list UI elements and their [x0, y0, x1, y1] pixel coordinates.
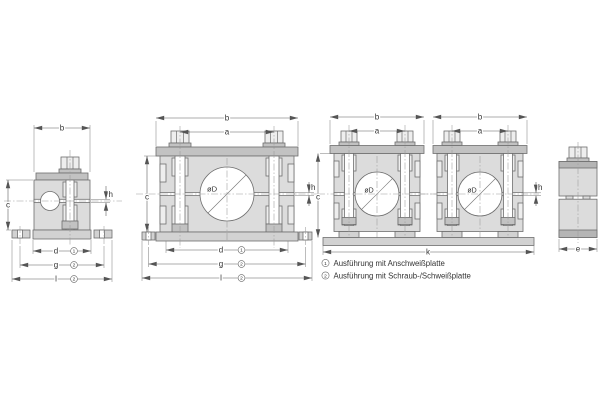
dim-label-d: d [54, 247, 58, 256]
view-small-clamp: b c h d 1 g 2 l 2 [4, 124, 122, 284]
clamp-geometry [12, 157, 112, 239]
base-plate [33, 230, 91, 239]
dimensions: e [559, 239, 597, 254]
dim-label-b: b [60, 124, 65, 133]
dim-label-l: l [220, 274, 222, 283]
ref-2: 2 [73, 263, 76, 269]
view-side: e [559, 142, 597, 254]
dim-label-h: h [538, 183, 542, 192]
dim-label-a: a [225, 128, 230, 137]
legend-ref-1: 1 [324, 261, 327, 267]
dim-label-a: a [375, 127, 380, 136]
mounting-rail [323, 238, 534, 246]
dim-label-b: b [225, 114, 230, 123]
ref-2: 2 [240, 262, 243, 268]
top-cover-plate [36, 173, 88, 180]
dim-label-c: c [145, 193, 149, 202]
clamp-right [421, 125, 539, 241]
legend-item-weld-plate: 1 Ausführung mit Anschweißplatte [322, 259, 445, 268]
view-double-clamp-rail: b a b a c h k [316, 113, 542, 257]
ref-2: 2 [240, 276, 243, 282]
dim-label-h: h [109, 190, 113, 199]
dim-label-b: b [375, 113, 380, 122]
technical-drawing-page: øD [0, 0, 600, 400]
legend: 1 Ausführung mit Anschweißplatte 2 Ausfü… [322, 259, 471, 281]
dim-label-e: e [576, 245, 581, 254]
diameter-label: øD [207, 185, 218, 194]
ref-2: 2 [73, 277, 76, 283]
dim-label-b: b [478, 113, 483, 122]
legend-text-2: Ausführung mit Schraub-/Schweißplatte [334, 271, 471, 280]
dim-label-l: l [55, 275, 57, 284]
dim-label-h: h [311, 183, 315, 192]
clamp-left [318, 125, 436, 241]
dim-label-g: g [219, 260, 223, 269]
dim-label-c: c [6, 201, 10, 210]
ref-1: 1 [240, 248, 243, 254]
ref-1: 1 [73, 249, 76, 255]
legend-ref-2: 2 [324, 273, 327, 279]
dim-label-g: g [54, 261, 58, 270]
legend-text-1: Ausführung mit Anschweißplatte [334, 259, 445, 268]
pipe-clamp-technical-drawing: øD [0, 0, 600, 400]
dim-label-d: d [219, 246, 223, 255]
dim-label-c: c [316, 193, 320, 202]
view-clamp-flanged-plate: øD b a c h d 1 g [136, 114, 318, 283]
dim-label-a: a [478, 127, 483, 136]
legend-item-screw-weld-plate: 2 Ausführung mit Schraub-/Schweißplatte [322, 271, 471, 280]
top-cover-plate [156, 147, 298, 156]
